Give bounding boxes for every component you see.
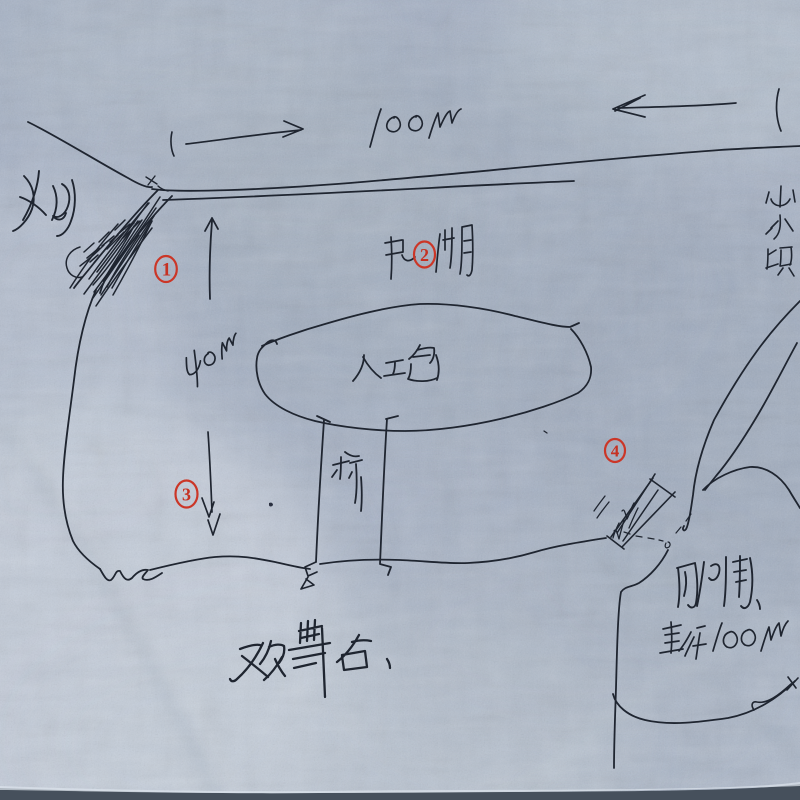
svg-text:1: 1 (162, 260, 172, 281)
svg-text:2: 2 (420, 245, 429, 265)
svg-text:4: 4 (611, 442, 620, 461)
svg-text:3: 3 (182, 485, 191, 505)
